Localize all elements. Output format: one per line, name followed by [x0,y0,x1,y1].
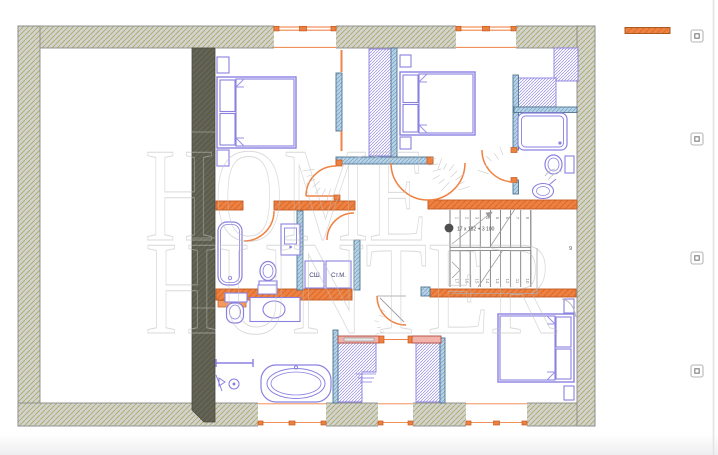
svg-text:9: 9 [569,246,572,252]
svg-text:HUNTER: HUNTER [145,214,557,362]
